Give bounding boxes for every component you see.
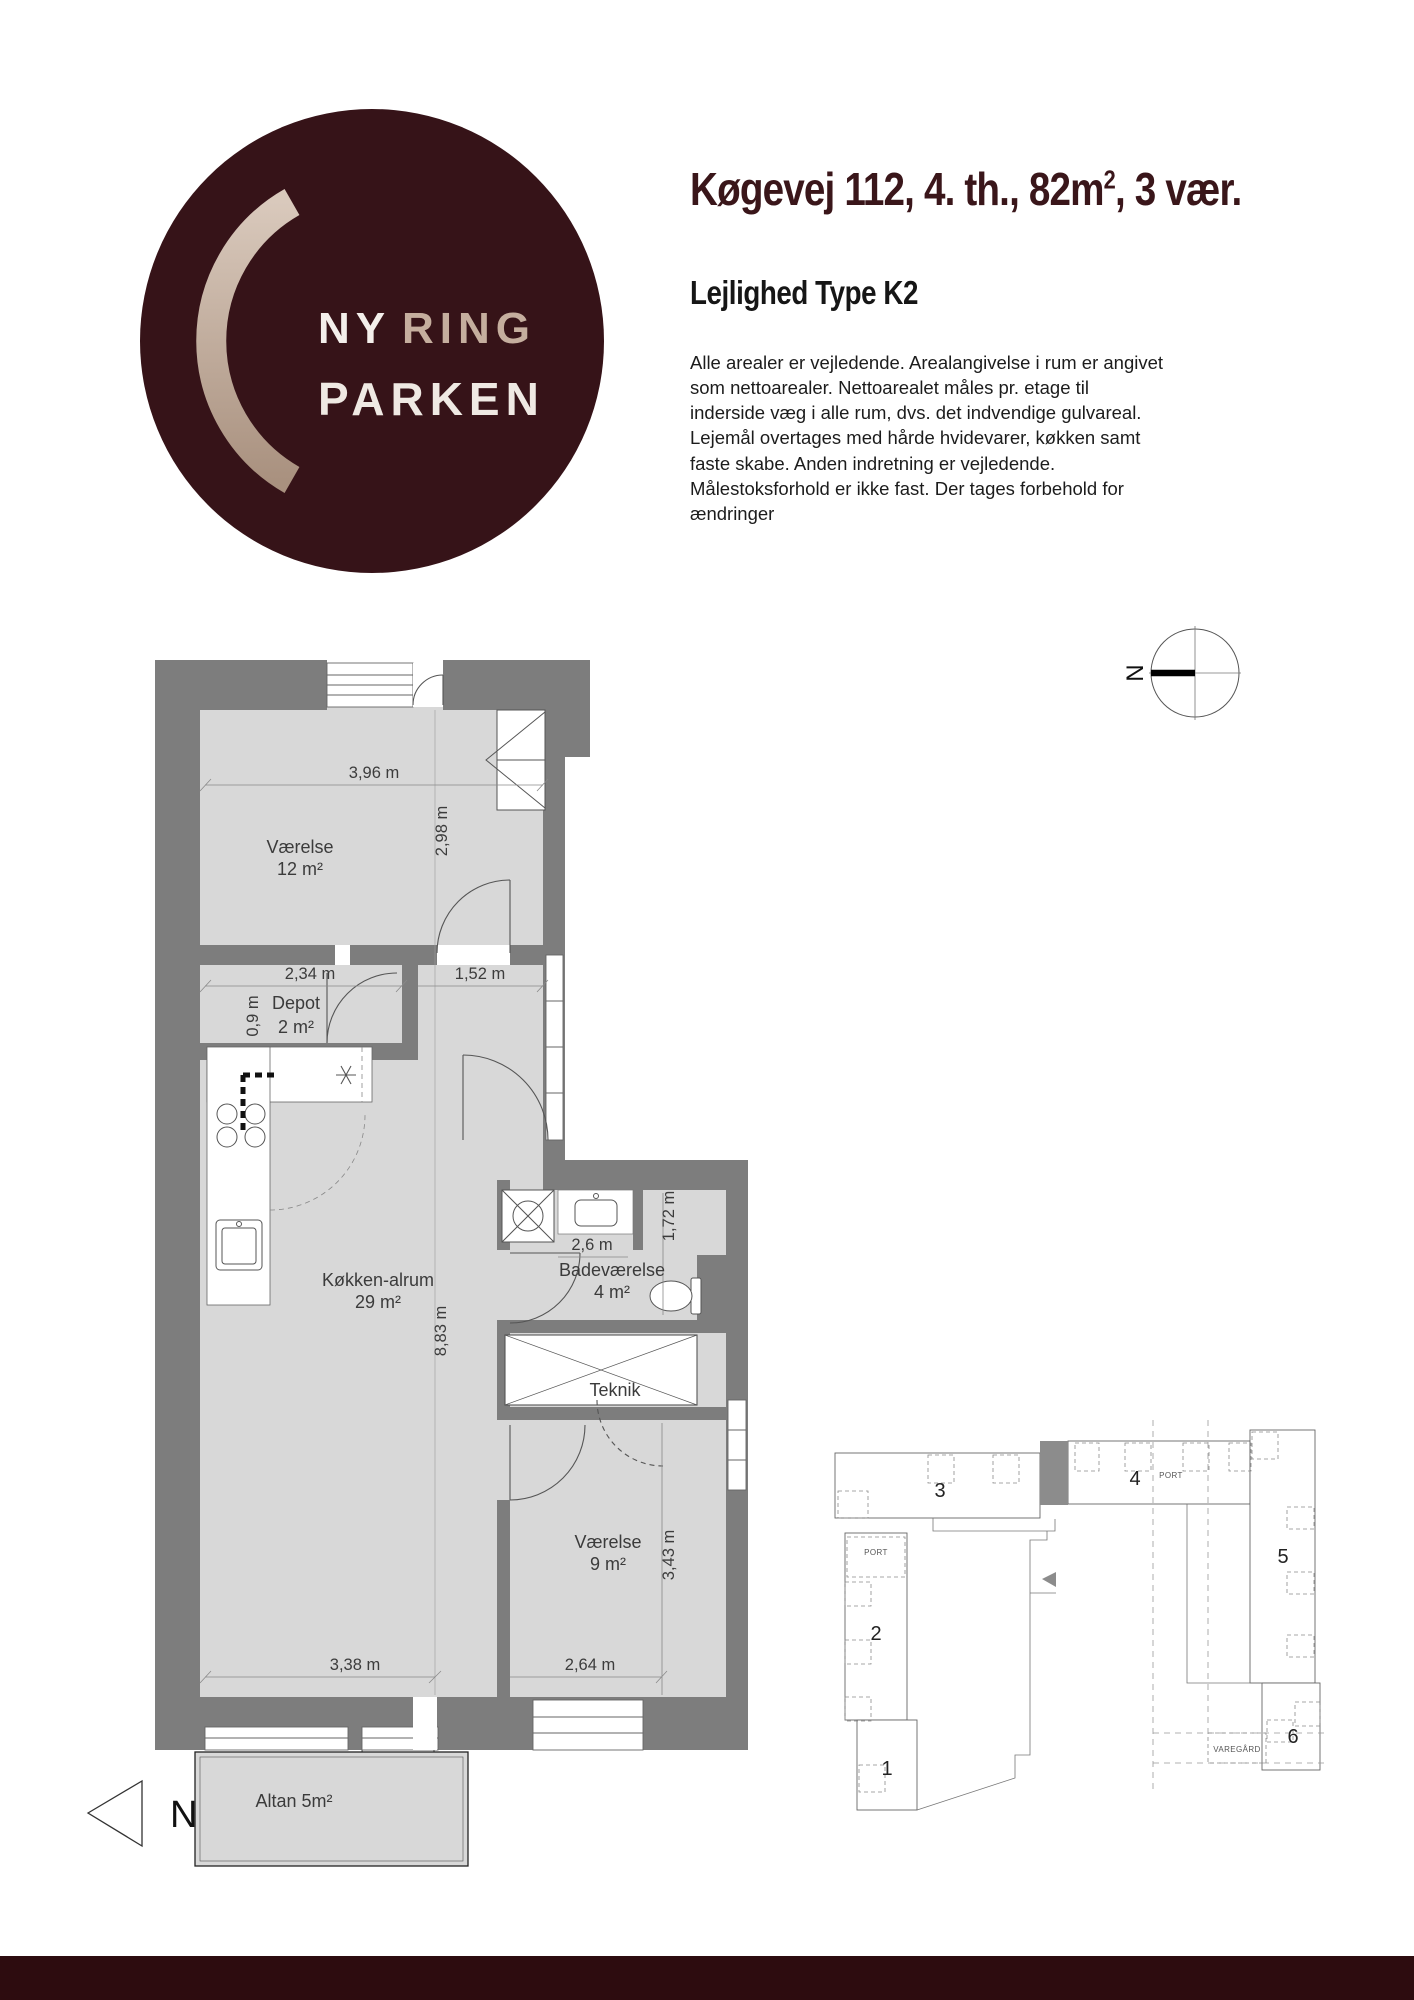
logo: NY RING PARKEN [140,109,604,573]
north-arrow-icon: N [78,1772,208,1856]
dim-26: 2,6 m [571,1236,612,1254]
room-bad-area: 4 m² [594,1282,630,1302]
flyer-page: NY RING PARKEN Køgevej 112, 4. th., 82m2… [0,0,1414,2000]
compass-icon: N [1115,612,1250,737]
room-vaerelse9-name: Værelse [574,1532,641,1552]
room-teknik-name: Teknik [589,1380,641,1400]
room-vaerelse9-area: 9 m² [590,1554,626,1574]
building-3-label: 3 [934,1480,945,1502]
site-outline-paths [917,1504,1262,1810]
north-arrow-label: N [170,1794,197,1836]
building-5-label: 5 [1277,1546,1288,1568]
title-main: Køgevej 112, 4. th., 82m [690,163,1104,215]
disclaimer-line: Lejemål overtages med hårde hvidevarer, … [690,425,1210,450]
port-label-b2: PORT [864,1548,888,1557]
kitchen-sink-icon [216,1220,262,1270]
title-superscript: 2 [1104,165,1115,195]
dim-883: 8,83 m [432,1306,450,1356]
page-title: Køgevej 112, 4. th., 82m2, 3 vær. [690,166,1241,212]
floor-plan: 3,96 m 2,98 m 2,34 m 1,52 m 0,9 m 8,83 m… [150,655,750,1870]
disclaimer-text: Alle arealer er vejledende. Arealangivel… [690,350,1210,526]
logo-word-ring: RING [402,304,536,353]
port-label-b4: PORT [1159,1471,1183,1480]
logo-word-ny: NY [318,304,391,353]
varegaard-label: VAREGÅRD [1213,1745,1261,1754]
page-subtitle: Lejlighed Type K2 [690,276,918,309]
dim-264: 2,64 m [565,1656,615,1674]
disclaimer-line: Målestoksforhold er ikke fast. Der tages… [690,476,1210,501]
compass-north-label: N [1121,664,1148,681]
logo-word-parken: PARKEN [318,373,545,425]
building-6-label: 6 [1287,1726,1298,1748]
title-tail: , 3 vær. [1115,163,1241,215]
disclaimer-line: inderside væg i alle rum, dvs. det indve… [690,400,1210,425]
building-1-label: 1 [881,1758,892,1780]
dim-396: 3,96 m [349,764,399,782]
building-4-label: 4 [1129,1468,1140,1490]
room-altan-name: Altan 5m² [255,1791,332,1811]
dim-172: 1,72 m [660,1191,678,1241]
room-koekken-name: Køkken-alrum [322,1270,434,1290]
disclaimer-line: ændringer [690,501,1210,526]
disclaimer-line: som nettoarealer. Nettoarealet måles pr.… [690,375,1210,400]
entrance-triangle-icon [1042,1572,1056,1587]
dim-343: 3,43 m [660,1530,678,1580]
room-koekken-area: 29 m² [355,1292,401,1312]
footer-bar [0,1956,1414,2000]
disclaimer-line: faste skabe. Anden indretning er vejlede… [690,451,1210,476]
shower-icon [502,1190,554,1242]
bath-sink-icon [558,1190,633,1234]
dim-09: 0,9 m [244,995,262,1036]
dim-152: 1,52 m [455,965,505,983]
site-plan: 3 4 5 6 2 1 PORT PORT VAREGÅRD [815,1415,1345,1825]
dim-234: 2,34 m [285,965,335,983]
disclaimer-line: Alle arealer er vejledende. Arealangivel… [690,350,1210,375]
room-depot-name: Depot [272,993,320,1013]
room-depot-area: 2 m² [278,1017,314,1037]
building-2-label: 2 [870,1623,881,1645]
dim-338: 3,38 m [330,1656,380,1674]
room-vaerelse12-area: 12 m² [277,859,323,879]
room-vaerelse12-name: Værelse [266,837,333,857]
current-apartment-marker [1040,1441,1068,1505]
room-bad-name: Badeværelse [559,1260,665,1280]
dim-298: 2,98 m [433,806,451,856]
